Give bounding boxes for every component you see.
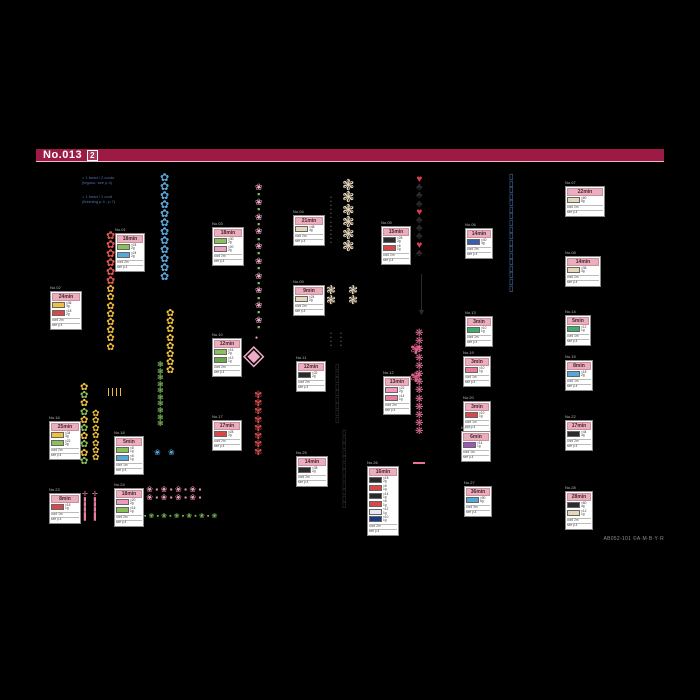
bead-count: ×182g (581, 371, 586, 378)
color-swatch (51, 440, 64, 446)
bead-count: ×81g (130, 447, 134, 454)
bead-strand: ▫▫▫▫▫▫▫▫▫▫▫▫ (330, 196, 332, 245)
box-note: cord 2m (298, 475, 326, 480)
bead-strand: ✿✿✿✿✿✿✿✿✿✿✿✿✿✿ (106, 232, 115, 352)
swatch-row: ×322g (298, 372, 324, 379)
bead-count: ×141g (399, 395, 404, 402)
pattern-number-tag: No.26 (367, 461, 378, 465)
bead-glyph: ▫ (330, 344, 332, 348)
swatch-row: ×101g (465, 412, 489, 419)
color-swatch (295, 296, 308, 302)
color-swatch (116, 455, 129, 461)
bead-count: ×101g (481, 327, 486, 334)
bead-glyph: ▮ (82, 517, 88, 522)
bead-count: ×202g (130, 499, 135, 506)
bead-count: ×222g (65, 440, 70, 447)
size-label: 8min (51, 495, 79, 503)
swatch-row: ×282g (214, 431, 240, 438)
swatch-row: ×61g (369, 500, 397, 507)
size-label: 16min (369, 468, 397, 476)
color-swatch (116, 499, 129, 505)
size-label: 14min (567, 258, 599, 266)
color-swatch (466, 497, 479, 503)
swatch-row: ×141g (385, 395, 409, 402)
pattern-number-tag: No.04 (293, 210, 304, 214)
color-swatch (567, 267, 580, 273)
pattern-info-box: 9min×242gcord 2msee p.4 (293, 285, 325, 316)
bead-glyph: ▪ (182, 494, 189, 502)
color-swatch (567, 510, 580, 516)
bead-strand: ❃❃❃❃❃❃ (342, 180, 355, 254)
pattern-info-box: 17min×443gcord 2msee p.4 (565, 420, 593, 451)
bead-count: ×242g (131, 252, 136, 259)
bead-glyph: ❃ (157, 421, 164, 428)
footer-credit: AB052-101 ©A·M·B·Y·R (603, 536, 664, 542)
pattern-number-tag: No.27 (464, 481, 475, 485)
swatch-row: ×363g (52, 302, 80, 309)
bead-strand: ❀ (168, 450, 175, 457)
bead-count: ×322g (312, 372, 317, 379)
color-swatch (51, 432, 64, 438)
size-label: 3min (467, 318, 491, 326)
tassel-fringe (116, 388, 117, 396)
box-note: see p.4 (567, 280, 599, 285)
bead-weight: 1g (65, 507, 70, 510)
box-note: cord 2m (383, 253, 409, 258)
bead-count: ×81g (130, 455, 134, 462)
swatch-row: ×101g (465, 367, 489, 374)
box-note: cord 2m (567, 275, 599, 280)
pattern-info-box: 14min×403gcord 2msee p.4 (465, 228, 493, 259)
bead-glyph: ♣ (416, 250, 423, 258)
box-note: cord 2m (295, 234, 323, 239)
box-note: see p.4 (295, 239, 323, 244)
pattern-number-tag: No.11 (296, 356, 306, 360)
bead-weight: 3g (481, 242, 486, 245)
box-note: cord 1m (465, 420, 489, 425)
color-swatch (369, 493, 382, 499)
size-label: 17min (214, 422, 240, 430)
box-note: see p.4 (51, 453, 79, 458)
bead-glyph: ❀ (189, 494, 196, 502)
pattern-number-tag: No.13 (465, 311, 476, 315)
color-swatch (567, 502, 580, 508)
pattern-number-tag: No.08 (565, 251, 576, 255)
box-note: see p.4 (214, 444, 240, 449)
box-note: see p.4 (52, 323, 80, 328)
pattern-info-box: 28min×604g×121gcord 2msee p.4 (565, 491, 593, 530)
size-label: 36min (466, 488, 490, 496)
tassel-fringe (108, 388, 109, 396)
pattern-number-tag: No.22 (565, 415, 576, 419)
box-note: see p.4 (295, 309, 323, 314)
swatch-row: ×906g (466, 497, 490, 504)
bead-glyph: ✿ (80, 458, 88, 466)
size-label: 22min (567, 188, 603, 196)
pattern-info-box: 25min×343g×222gcord 2msee p.4 (49, 421, 81, 460)
box-note: see p.4 (463, 455, 489, 460)
bead-count: ×382g (312, 467, 317, 474)
pattern-info-box: 18min×202g×161gcord 2msee p.4 (114, 488, 144, 527)
bead-count: ×81g (383, 485, 387, 492)
bead-count: ×162g (228, 349, 233, 356)
pattern-info-box: 36min×906gcord 3msee p.4 (464, 486, 492, 517)
box-note: cord 1m (567, 334, 589, 339)
diamond-outline: ◈ (243, 341, 265, 369)
swatch-row: ×302g (214, 238, 242, 245)
swatch-row: ×61g (383, 245, 409, 252)
pattern-number-tag: No.05 (381, 221, 392, 225)
pattern-number-tag: No.17 (212, 415, 223, 419)
swatch-row: ×242g (117, 252, 143, 259)
size-label: 8min (567, 362, 591, 370)
swatch-row: ×182g (369, 477, 397, 484)
box-note: cord 2m (51, 448, 79, 453)
bead-strand: ▯▯▯▯▯▯▯▯▯▯▯▯▯▯▯▯▯▯ (509, 174, 513, 292)
box-note: cord 1m (465, 375, 489, 380)
bead-weight: 2g (228, 249, 233, 252)
footer-code: AB052-101 (603, 536, 631, 542)
swatch-row: ×343g (51, 432, 79, 439)
box-note: cord 3m (466, 505, 490, 510)
box-note: cord 2m (369, 524, 397, 529)
size-label: 12min (214, 340, 240, 348)
bead-glyph: ✾ (410, 342, 422, 356)
pattern-info-box: 3min×101gcord 1msee p.4 (463, 356, 491, 387)
box-note: cord 2m (467, 247, 491, 252)
footer-copyright: ©A·M·B·Y·R (633, 536, 664, 542)
swatch-row: ×141g (369, 493, 397, 500)
pattern-info-box: 24min×363g×182gcord 2msee p.4 (50, 291, 82, 330)
color-swatch (116, 507, 129, 513)
bead-weight: 2g (131, 255, 136, 258)
pattern-number-tag: No.16 (49, 416, 60, 420)
box-note: cord 1m (51, 512, 79, 517)
bead-glyph: ❃ (326, 296, 336, 306)
color-swatch (369, 509, 382, 515)
pattern-number-tag: No.02 (50, 286, 61, 290)
swatch-row: ×81g (116, 455, 142, 462)
bead-weight: 2g (312, 470, 317, 473)
bead-glyph: ▼ (417, 308, 426, 317)
bead-strand: ▪❀▪❀▪❀▪❀▪❀▪❀ (142, 513, 218, 520)
bead-strand: ❃❃ (326, 286, 336, 306)
pattern-info-box: 8min×182gcord 1msee p.4 (565, 360, 593, 391)
bead-weight: 2g (228, 434, 233, 437)
pattern-number-tag: No.09 (293, 280, 304, 284)
bead-strand: ▯▯▯▯▯▯▯▯▯ (335, 364, 339, 423)
box-note: see p.4 (467, 340, 491, 345)
bead-glyph: ▪ (168, 494, 175, 502)
bead-glyph: ▯ (335, 417, 339, 424)
bead-count: ×161g (65, 504, 70, 511)
bead-glyph: ▫ (330, 241, 332, 245)
bead-weight: 1g (383, 519, 388, 522)
bead-count: ×604g (581, 502, 586, 509)
box-note: see p.4 (116, 468, 142, 473)
pattern-number-tag: No.07 (565, 181, 576, 185)
box-note: cord 2m (295, 304, 323, 309)
bead-count: ×605g (581, 197, 586, 204)
box-note: see p.4 (383, 258, 409, 263)
bead-count: ×403g (481, 239, 486, 246)
size-label: 15min (383, 228, 409, 236)
bead-glyph: ▯ (509, 286, 513, 293)
bead-glyph: ✾ (254, 449, 262, 457)
bead-count: ×141g (477, 442, 482, 449)
swatch-row: ×443g (567, 431, 591, 438)
pattern-info-box: 8min×161gcord 1msee p.4 (49, 493, 81, 524)
bead-weight: 6g (480, 500, 485, 503)
swatch-row: ×403g (467, 239, 491, 246)
bead-count: ×906g (480, 497, 485, 504)
bead-strand: ♥♣♣♣♥♣♣♣♥♣ (416, 176, 423, 258)
pattern-info-box: 21min×484gcord 2msee p.4 (293, 215, 325, 246)
box-note: see p.4 (567, 444, 591, 449)
color-swatch (385, 387, 398, 393)
swatch-row: ×121g (369, 508, 397, 515)
bead-strand: ✛▮▮▮▮▮ (92, 492, 98, 522)
box-note: see p.4 (467, 252, 491, 257)
swatch-row: ×202g (116, 499, 142, 506)
bead-glyph: ❀ (160, 494, 167, 502)
bead-weight: 2g (65, 443, 70, 446)
pattern-number-tag: No.28 (565, 486, 576, 490)
box-note: see p.4 (567, 384, 591, 389)
size-label: 3min (465, 403, 489, 411)
swatch-row: ×161g (116, 507, 142, 514)
pattern-number-tag: No.18 (114, 431, 125, 435)
bead-count: ×121g (383, 508, 388, 515)
bead-weight: 1g (399, 398, 404, 401)
tassel-fringe (120, 388, 121, 396)
swatch-row: ×182g (52, 310, 80, 317)
bead-weight: 1g (581, 513, 586, 516)
pattern-info-box: 13min×222g×141gcord 2msee p.4 (383, 376, 411, 415)
color-swatch (369, 501, 382, 507)
box-note: see p.4 (385, 408, 409, 413)
box-note: see p.4 (214, 259, 242, 264)
bead-strand: ▫▫▫▫ (340, 332, 342, 348)
bead-count: ×182g (383, 477, 388, 484)
pattern-info-box: 18min×242g×242gcord 2msee p.4 (115, 233, 145, 272)
bead-count: ×121g (228, 357, 233, 364)
bead-count: ×141g (383, 493, 388, 500)
pattern-info-box: 18min×302g×202gcord 2msee p.4 (212, 227, 244, 266)
box-note: see p.4 (466, 510, 490, 515)
swatch-row: ×262g (383, 237, 409, 244)
bead-weight: 3g (581, 434, 586, 437)
box-note: cord 2m (214, 439, 240, 444)
bead-count: ×61g (383, 500, 387, 507)
bead-count: ×443g (581, 431, 586, 438)
bead-glyph: ❋ (415, 428, 423, 436)
box-note: cord 1m (467, 335, 491, 340)
color-swatch (385, 395, 398, 401)
bead-glyph: ❀ (146, 494, 153, 502)
size-label: 18min (117, 235, 143, 243)
color-swatch (567, 371, 580, 377)
size-label: 3min (465, 358, 489, 366)
bead-count: ×282g (228, 431, 233, 438)
bead-glyph: ❀ (211, 513, 217, 520)
color-swatch (383, 245, 396, 251)
swatch-row: ×242g (295, 296, 323, 303)
color-swatch (214, 357, 227, 363)
bead-strand: ✾✾✾✾✾✾✾✾ (254, 392, 262, 458)
pattern-number-tag: No.25 (296, 451, 307, 455)
pattern-number-tag: No.15 (565, 355, 576, 359)
size-label: 5min (567, 317, 589, 325)
bead-weight: 1g (228, 360, 233, 363)
size-label: 12min (298, 363, 324, 371)
box-note: cord 1m (567, 379, 591, 384)
swatch-row: ×484g (295, 226, 323, 233)
bead-count: ×202g (228, 246, 233, 253)
bead-count: ×161g (130, 507, 135, 514)
bead-weight: 1g (581, 329, 586, 332)
swatch-row: ×141g (463, 442, 489, 449)
box-note: cord 2m (567, 439, 591, 444)
pattern-info-box: 6min×141gcord 1msee p.4 (461, 431, 491, 462)
swatch-row: ×363g (567, 267, 599, 274)
size-label: 5min (116, 438, 142, 446)
bead-weight: 1g (130, 510, 135, 513)
bead-glyph: ✿ (106, 344, 115, 352)
swatch-row: ×182g (567, 371, 591, 378)
box-note: see p.4 (116, 520, 142, 525)
bead-weight: 1g (479, 415, 484, 418)
box-note: see p.4 (465, 380, 489, 385)
box-note: cord 2m (116, 515, 142, 520)
color-swatch (567, 326, 580, 332)
box-note: cord 1m (116, 463, 142, 468)
swatch-row: ×604g (567, 502, 591, 509)
swatch-row: ×222g (385, 387, 409, 394)
box-note: cord 2m (214, 254, 242, 259)
bead-weight: 1g (479, 370, 484, 373)
box-note: see p.4 (567, 210, 603, 215)
bead-count: ×262g (397, 237, 402, 244)
bead-strand: ❀▪❀▪❀▪❀▪❀▪❀▪❀▪❀▪❀▪❀▪ (255, 184, 263, 332)
pattern-number-tag: No.14 (565, 310, 576, 314)
bead-weight: 1g (130, 458, 134, 461)
bead-weight: 2g (312, 375, 317, 378)
color-swatch (298, 467, 311, 473)
pattern-sheet: No.013 2 = 1 bead / 2 cords(tegusu, see … (0, 0, 700, 700)
bead-strand: ✛▮▮▮▮▮ (82, 492, 88, 522)
bead-weight: 2g (66, 313, 71, 316)
box-note: see p.4 (51, 517, 79, 522)
swatch-row: ×605g (567, 197, 603, 204)
box-note: see p.4 (214, 370, 240, 375)
swatch-row: ×81g (369, 485, 397, 492)
bead-count: ×242g (309, 296, 314, 303)
bead-weight: 1g (481, 330, 486, 333)
color-swatch (465, 412, 478, 418)
bead-weight: 3g (581, 270, 586, 273)
pattern-info-box: 12min×162g×121gcord 2msee p.4 (212, 338, 242, 377)
color-swatch (369, 477, 382, 483)
box-note: see p.4 (369, 529, 397, 534)
swatch-row: ×121g (214, 357, 240, 364)
color-swatch (117, 252, 130, 258)
bead-count: ×121g (581, 510, 586, 517)
bead-glyph: ▪ (255, 324, 263, 331)
connector-line (421, 274, 422, 310)
pattern-info-box: 3min×101gcord 1msee p.4 (465, 316, 493, 347)
pattern-number-tag: No.01 (115, 228, 126, 232)
box-note: cord 2m (214, 365, 240, 370)
bead-strand: ✿✿✿✿✿✿✿✿✿✿ (80, 384, 88, 466)
swatch-row: ×382g (298, 467, 326, 474)
color-swatch (567, 431, 580, 437)
box-note: cord 2m (385, 403, 409, 408)
color-swatch (298, 372, 311, 378)
pattern-number-tag: No.20 (463, 396, 474, 400)
pattern-info-box: 17min×282gcord 2msee p.4 (212, 420, 242, 451)
size-label: 13min (385, 378, 409, 386)
pattern-number-tag: No.19 (463, 351, 474, 355)
pattern-info-box: 14min×382gcord 2msee p.4 (296, 456, 328, 487)
pattern-number-tag: No.23 (49, 488, 60, 492)
bead-glyph: ▯ (342, 502, 346, 509)
bead-strand: ❀▪❀▪❀▪❀▪ (146, 494, 204, 502)
pattern-number-tag: No.10 (212, 333, 223, 337)
color-swatch (214, 431, 227, 437)
size-label: 25min (51, 423, 79, 431)
bead-weight: 2g (581, 374, 586, 377)
motif-canvas: 18min×242g×242gcord 2msee p.4No.0124min×… (0, 0, 700, 700)
color-swatch (116, 447, 129, 453)
bead-glyph: ▪ (153, 494, 160, 502)
pattern-info-box: 22min×605gcord 2msee p.4 (565, 186, 605, 217)
size-label: 17min (567, 422, 591, 430)
box-note: cord 2m (298, 380, 324, 385)
bead-glyph: ✿ (166, 367, 174, 375)
color-swatch (214, 349, 227, 355)
connector-line (413, 462, 425, 464)
pattern-number-tag: No.12 (383, 371, 394, 375)
color-swatch (52, 302, 65, 308)
bead-count: ×121g (581, 326, 586, 333)
pattern-info-box: 5min×81g×81gcord 1msee p.4 (114, 436, 144, 475)
pattern-info-box: 5min×121gcord 1msee p.4 (565, 315, 591, 346)
color-swatch (214, 246, 227, 252)
size-label: 14min (467, 230, 491, 238)
bead-glyph: ✾ (410, 370, 422, 384)
bead-glyph: ❀ (175, 494, 182, 502)
swatch-row: ×121g (567, 326, 589, 333)
bead-glyph: ✿ (160, 273, 169, 282)
bead-strand: ❀ (154, 450, 161, 457)
bead-strand: ✿✿✿✿✿✿✿✿✿✿✿✿ (160, 174, 169, 282)
box-note: see p.4 (298, 480, 326, 485)
box-note: see p.4 (567, 523, 591, 528)
bead-count: ×242g (131, 244, 136, 251)
bead-strand: ❃❃ (348, 286, 358, 306)
box-note: cord 2m (567, 205, 603, 210)
bead-strand: ✿✿✿✿✿✿✿✿ (166, 310, 174, 376)
color-swatch (567, 197, 580, 203)
bead-weight: 2g (309, 299, 314, 302)
swatch-row: ×202g (214, 246, 242, 253)
box-note: cord 1m (463, 450, 489, 455)
swatch-row: ×101g (467, 327, 491, 334)
color-swatch (295, 226, 308, 232)
box-note: cord 2m (52, 318, 80, 323)
pattern-number-tag: No.06 (465, 223, 476, 227)
